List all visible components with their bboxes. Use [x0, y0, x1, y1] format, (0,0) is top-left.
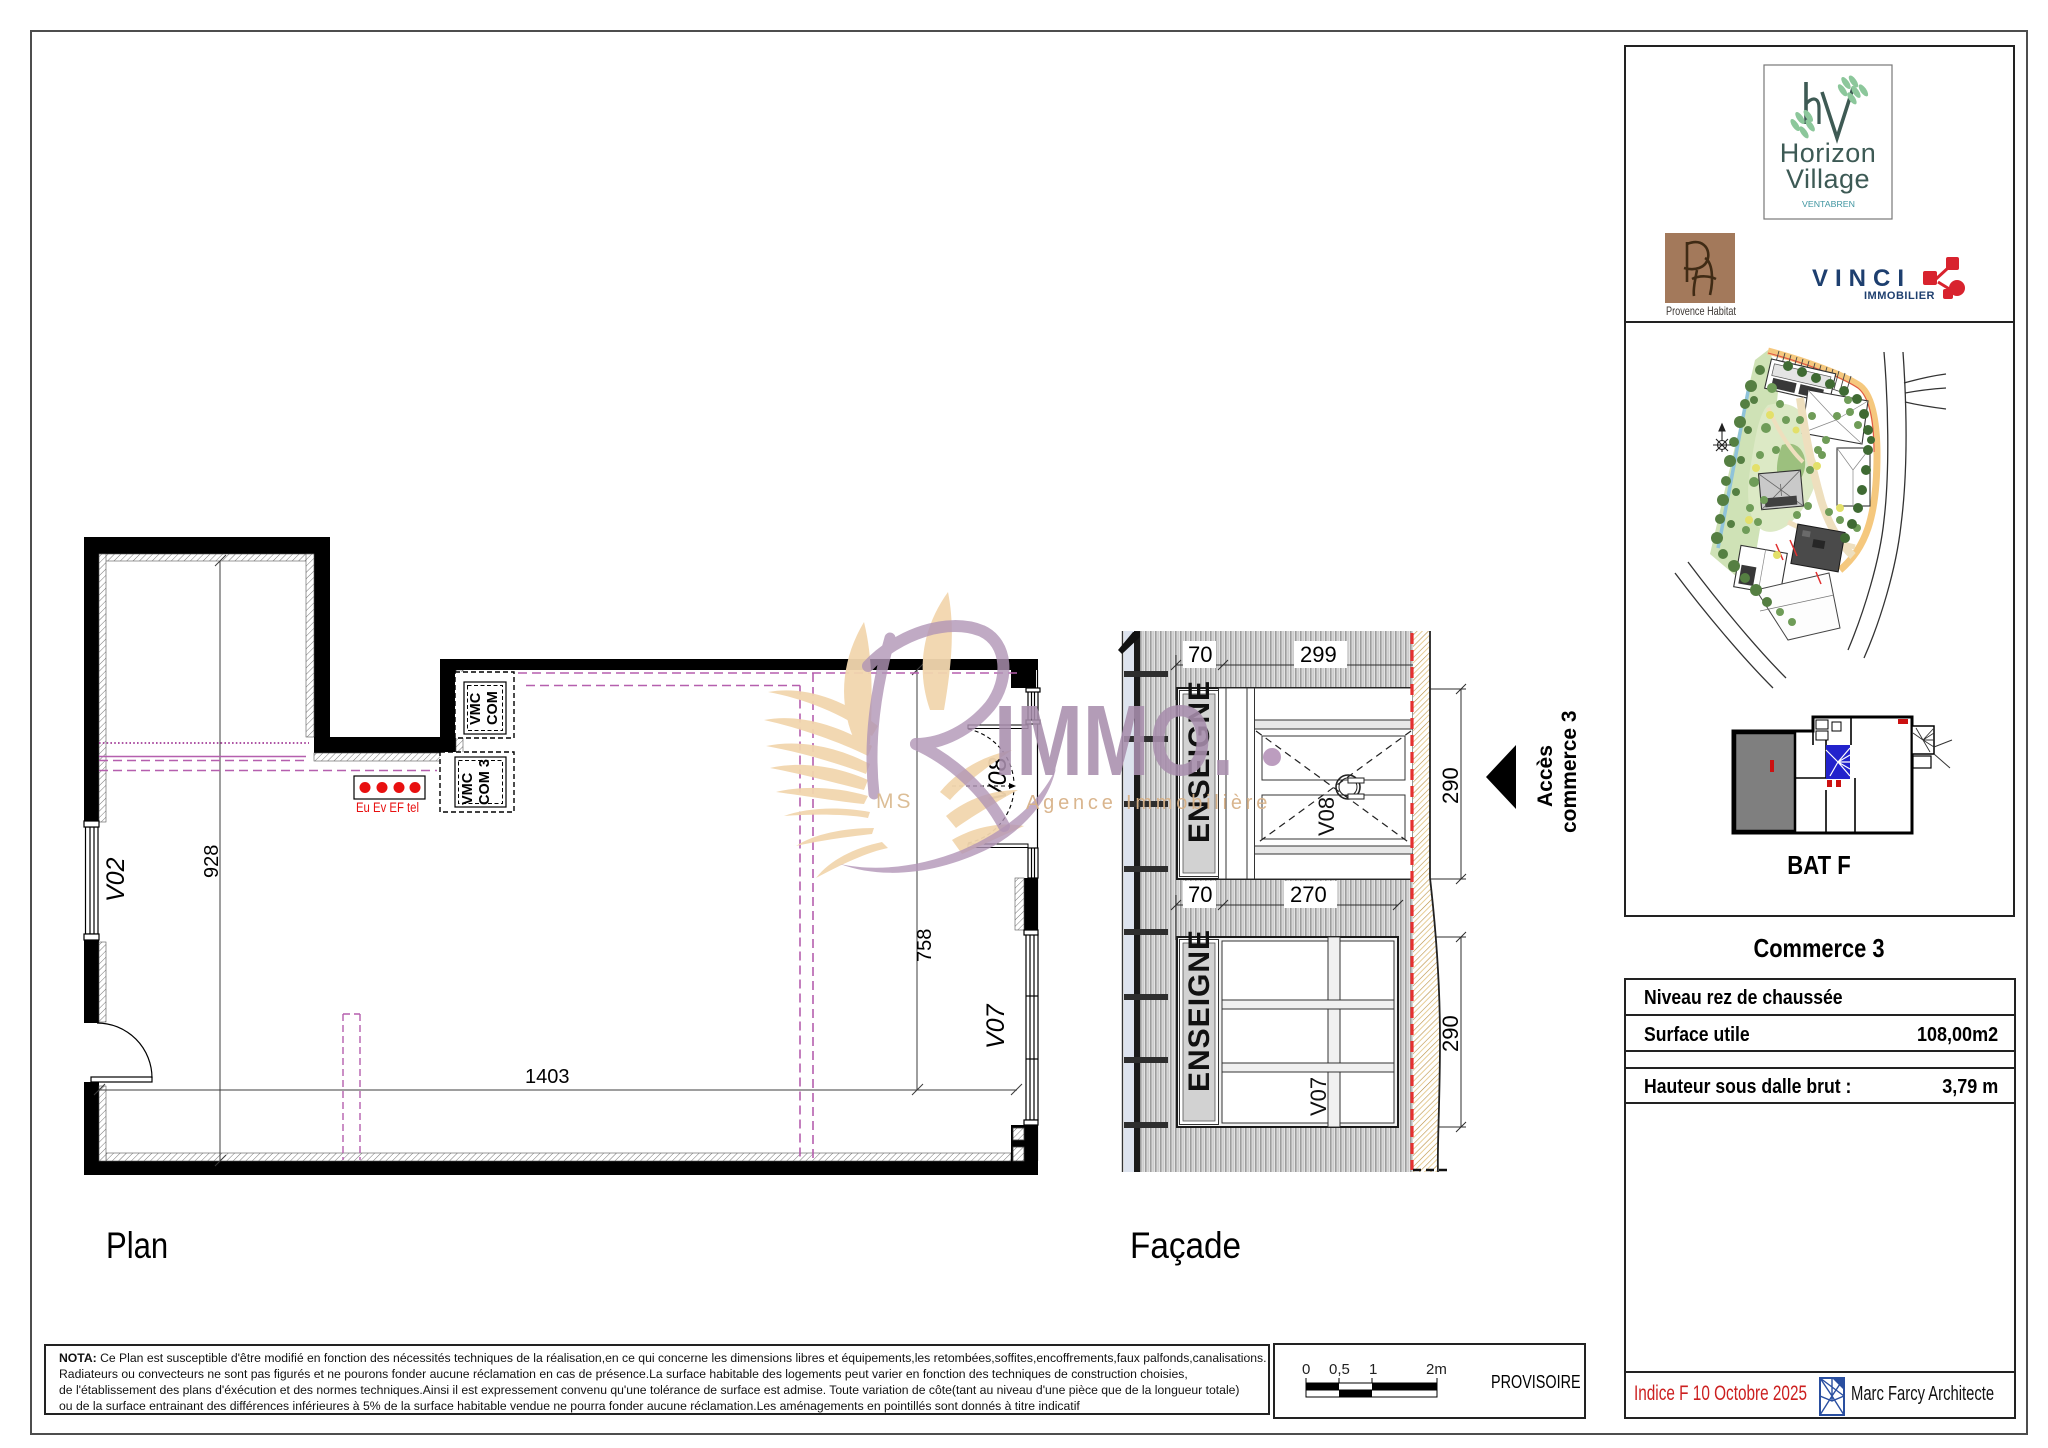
svg-text:Agence Immobilière: Agence Immobilière	[1026, 792, 1271, 814]
svg-text:70: 70	[1188, 882, 1212, 907]
svg-text:COM 3: COM 3	[477, 759, 493, 805]
svg-text:V08: V08	[1314, 797, 1339, 836]
svg-text:VMC: VMC	[460, 772, 476, 805]
svg-text:290: 290	[1438, 1015, 1463, 1052]
svg-text:Accès: Accès	[1534, 745, 1557, 807]
svg-text:70: 70	[1188, 642, 1212, 667]
svg-text:COM: COM	[485, 691, 501, 725]
svg-text:290: 290	[1438, 767, 1463, 804]
svg-text:VMC: VMC	[468, 692, 484, 725]
svg-text:V07: V07	[1306, 1077, 1331, 1116]
svg-text:MS: MS	[876, 790, 914, 813]
svg-text:V07: V07	[982, 1003, 1010, 1049]
svg-text:270: 270	[1290, 882, 1327, 907]
svg-text:758: 758	[914, 929, 936, 962]
svg-text:299: 299	[1300, 642, 1337, 667]
svg-text:Eu Ev EF tel: Eu Ev EF tel	[356, 800, 419, 815]
svg-text:V02: V02	[102, 857, 130, 902]
svg-text:commerce 3: commerce 3	[1558, 710, 1581, 833]
svg-text:1403: 1403	[525, 1066, 570, 1088]
svg-text:928: 928	[201, 845, 223, 878]
svg-text:ENSEIGNE: ENSEIGNE	[1183, 929, 1216, 1092]
svg-text:IMMO.: IMMO.	[994, 686, 1234, 798]
